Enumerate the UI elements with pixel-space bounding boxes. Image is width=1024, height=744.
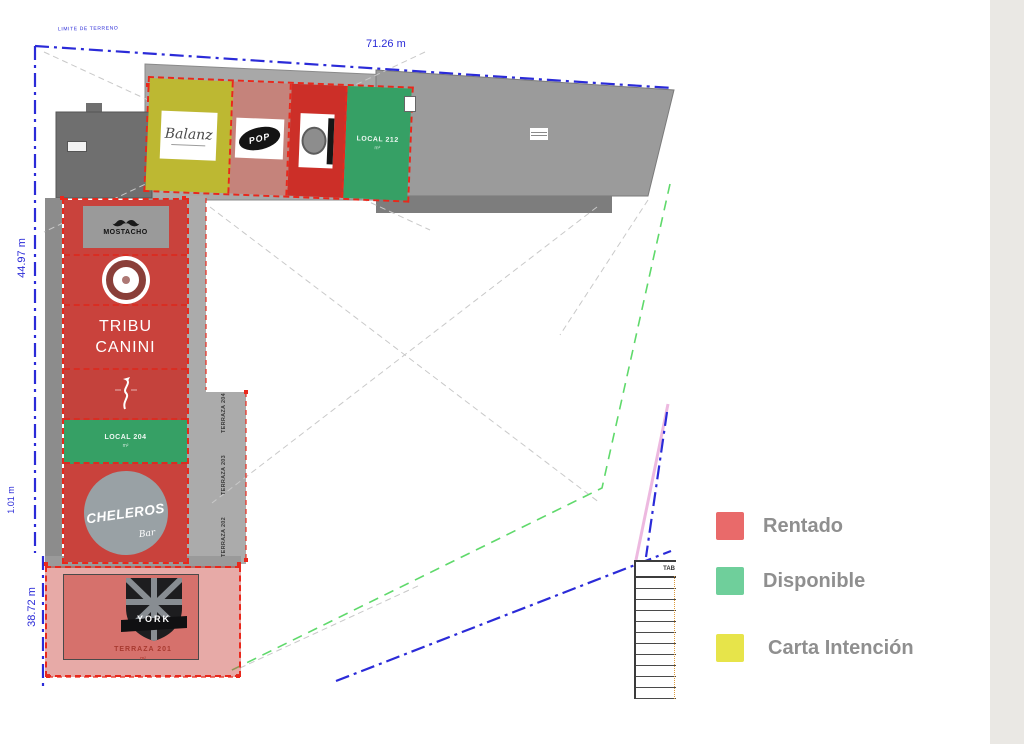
mostacho-label: MOSTACHO bbox=[103, 229, 147, 236]
balanz-logo-text: Balanz bbox=[164, 125, 212, 143]
balanz-logo-rule bbox=[171, 143, 205, 145]
seal-center bbox=[122, 276, 130, 284]
local-204-label: LOCAL 204 bbox=[104, 434, 146, 441]
shaft bbox=[404, 96, 416, 112]
unit-disponible-local-212[interactable]: LOCAL 212 m² bbox=[343, 86, 411, 200]
table-row bbox=[636, 600, 676, 611]
table-row bbox=[636, 644, 676, 655]
unit-rentado-pop[interactable]: POP bbox=[229, 81, 291, 195]
local-212-area: m² bbox=[374, 145, 380, 151]
service-building bbox=[56, 112, 152, 198]
tribu-canini-line2: CANINI bbox=[95, 337, 155, 358]
pop-logo: POP bbox=[235, 118, 285, 160]
round-seal-logo bbox=[102, 256, 150, 304]
terraza-201-area: m² bbox=[47, 656, 239, 662]
unit-rentado-cafe[interactable] bbox=[64, 256, 187, 306]
terraza-201-label: TERRAZA 201 bbox=[47, 646, 239, 653]
cheleros-bar-label: Bar bbox=[139, 528, 157, 540]
anchor-roof-band bbox=[376, 196, 612, 213]
easement-line bbox=[636, 404, 668, 560]
local-212-label: LOCAL 212 bbox=[356, 135, 398, 144]
table-row bbox=[636, 688, 676, 699]
balanz-logo: Balanz bbox=[160, 111, 218, 161]
table-row bbox=[636, 677, 676, 688]
left-wing-units: MOSTACHO TRIBU CANINI LOCAL 204 m² bbox=[62, 198, 189, 564]
roof-tag bbox=[530, 128, 548, 140]
table-row bbox=[636, 589, 676, 600]
unit-rentado-restaurant[interactable] bbox=[287, 84, 347, 198]
terraza-204-label: TERRAZA 204 bbox=[221, 383, 227, 443]
table-row bbox=[636, 578, 676, 589]
pop-logo-text: POP bbox=[248, 131, 272, 146]
table-row bbox=[636, 622, 676, 633]
dimension-left-lower: 38.72 m bbox=[26, 577, 38, 637]
floor-plan-page: Balanz POP LOCAL 212 m² bbox=[0, 0, 1024, 744]
building-notch bbox=[86, 103, 102, 112]
terrace-201-york[interactable]: YORK TERRAZA 201 m² bbox=[45, 566, 241, 677]
legend-item-carta-intencion: Carta Intención bbox=[716, 634, 914, 662]
unit-rentado-mostacho[interactable]: MOSTACHO bbox=[64, 200, 187, 256]
disponible-label: Disponible bbox=[763, 570, 865, 593]
area-table: TAB bbox=[634, 560, 676, 699]
green-boundary-line bbox=[228, 184, 670, 672]
building-tag bbox=[67, 141, 87, 152]
table-row bbox=[636, 633, 676, 644]
unit-rentado-tribu-canini[interactable]: TRIBU CANINI bbox=[64, 306, 187, 370]
unit-rentado-cheleros[interactable]: CHELEROS Bar bbox=[64, 464, 187, 562]
tribu-canini-line1: TRIBU bbox=[99, 316, 152, 337]
unit-disponible-local-204[interactable]: LOCAL 204 m² bbox=[64, 420, 187, 464]
vertical-name-bar bbox=[327, 118, 335, 164]
york-shield-logo bbox=[121, 574, 187, 644]
pop-logo-oval: POP bbox=[237, 123, 283, 154]
seal-ring bbox=[106, 260, 146, 300]
cheleros-logo: CHELEROS Bar bbox=[84, 471, 168, 555]
table-guide-line bbox=[674, 576, 675, 699]
dimension-left-mid: 1.01 m bbox=[6, 475, 16, 525]
legend-item-disponible: Disponible bbox=[716, 567, 865, 595]
table-row bbox=[636, 655, 676, 666]
plate-icon bbox=[301, 126, 327, 155]
legend-item-rentado: Rentado bbox=[716, 512, 843, 540]
table-row bbox=[636, 666, 676, 677]
mustache-icon bbox=[111, 219, 141, 228]
area-table-header: TAB bbox=[636, 562, 676, 578]
dimension-top: 71.26 m bbox=[366, 38, 406, 50]
terraza-202-label: TERRAZA 202 bbox=[221, 507, 227, 567]
boundary-note: LIMITE DE TERRENO bbox=[58, 25, 119, 32]
terraza-203-label: TERRAZA 203 bbox=[221, 445, 227, 505]
left-sidewalk bbox=[45, 198, 62, 562]
dimension-left-upper: 44.97 m bbox=[16, 228, 28, 288]
top-row-units: Balanz POP LOCAL 212 m² bbox=[143, 76, 413, 203]
local-204-area: m² bbox=[123, 443, 129, 449]
flamingo-script-logo bbox=[115, 376, 137, 412]
unit-carta-balanz[interactable]: Balanz bbox=[145, 78, 233, 193]
carta-intencion-label: Carta Intención bbox=[768, 637, 914, 660]
cheleros-label: CHELEROS bbox=[85, 500, 165, 526]
rentado-swatch bbox=[716, 512, 744, 540]
york-label: YORK bbox=[121, 614, 187, 624]
terrace-walkway bbox=[184, 392, 246, 564]
rentado-label: Rentado bbox=[763, 515, 843, 538]
restaurant-photo-logo bbox=[298, 113, 334, 168]
unit-rentado-bar[interactable] bbox=[64, 370, 187, 420]
carta-intencion-swatch bbox=[716, 634, 744, 662]
mostacho-logo: MOSTACHO bbox=[83, 206, 169, 248]
disponible-swatch bbox=[716, 567, 744, 595]
table-row bbox=[636, 611, 676, 622]
anchor-roof bbox=[376, 70, 674, 196]
